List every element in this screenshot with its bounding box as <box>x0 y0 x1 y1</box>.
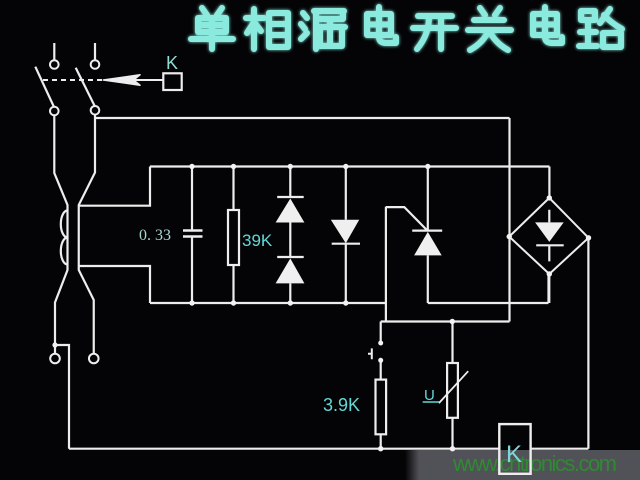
svg-text:3.9K: 3.9K <box>323 395 360 415</box>
svg-text:www.cntronics.com: www.cntronics.com <box>452 451 617 476</box>
svg-text:K: K <box>506 441 522 468</box>
svg-text:39K: 39K <box>242 231 273 250</box>
svg-text:0. 33: 0. 33 <box>139 227 171 244</box>
svg-text:K: K <box>166 53 178 73</box>
